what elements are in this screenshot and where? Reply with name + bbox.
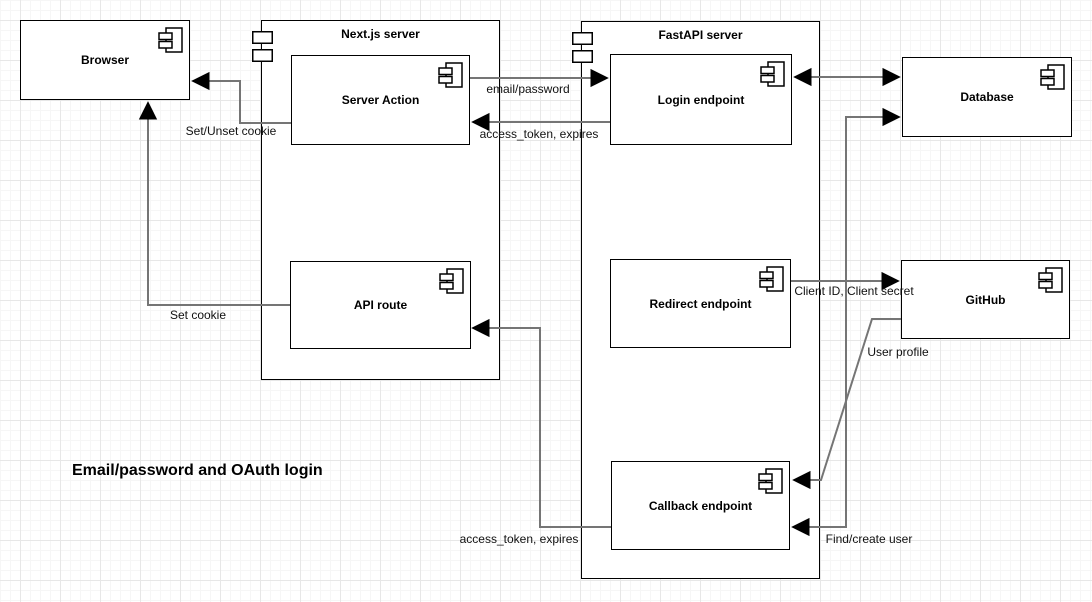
node-browser[interactable]: Browser — [20, 20, 190, 100]
node-callback-endpoint-label: Callback endpoint — [649, 499, 752, 513]
component-tabs-icon — [252, 31, 273, 62]
node-database-label: Database — [960, 90, 1013, 104]
diagram-canvas: Next.js server FastAPI server — [0, 0, 1092, 602]
node-login-endpoint[interactable]: Login endpoint — [610, 54, 792, 145]
component-icon — [158, 26, 184, 54]
component-icon — [759, 265, 785, 293]
container-fastapi-title: FastAPI server — [582, 28, 819, 42]
edge-label-set-unset-cookie[interactable]: Set/Unset cookie — [186, 124, 277, 138]
node-database[interactable]: Database — [902, 57, 1072, 137]
node-login-endpoint-label: Login endpoint — [658, 93, 745, 107]
component-icon — [438, 61, 464, 89]
component-icon — [1038, 266, 1064, 294]
node-api-route[interactable]: API route — [290, 261, 471, 349]
edge-label-email-password[interactable]: email/password — [486, 82, 569, 96]
node-callback-endpoint[interactable]: Callback endpoint — [611, 461, 790, 550]
node-github-label: GitHub — [966, 293, 1006, 307]
component-tabs-icon — [572, 32, 593, 63]
edge-label-set-cookie[interactable]: Set cookie — [170, 308, 226, 322]
node-api-route-label: API route — [354, 298, 407, 312]
diagram-caption[interactable]: Email/password and OAuth login — [72, 462, 323, 480]
node-github[interactable]: GitHub — [901, 260, 1070, 339]
edge-label-user-profile[interactable]: User profile — [867, 345, 928, 359]
node-redirect-endpoint[interactable]: Redirect endpoint — [610, 259, 791, 348]
container-nextjs-title: Next.js server — [262, 27, 499, 41]
edge-label-find-create-user[interactable]: Find/create user — [826, 532, 913, 546]
component-icon — [439, 267, 465, 295]
component-icon — [758, 467, 784, 495]
node-browser-label: Browser — [81, 53, 129, 67]
node-server-action-label: Server Action — [342, 93, 420, 107]
edge-label-access-token-top[interactable]: access_token, expires — [480, 127, 599, 141]
node-server-action[interactable]: Server Action — [291, 55, 470, 145]
edge-label-client-id-secret[interactable]: Client ID, Client secret — [794, 284, 913, 298]
component-icon — [760, 60, 786, 88]
node-redirect-endpoint-label: Redirect endpoint — [649, 297, 751, 311]
edge-label-access-token-bottom[interactable]: access_token, expires — [460, 532, 579, 546]
component-icon — [1040, 63, 1066, 91]
